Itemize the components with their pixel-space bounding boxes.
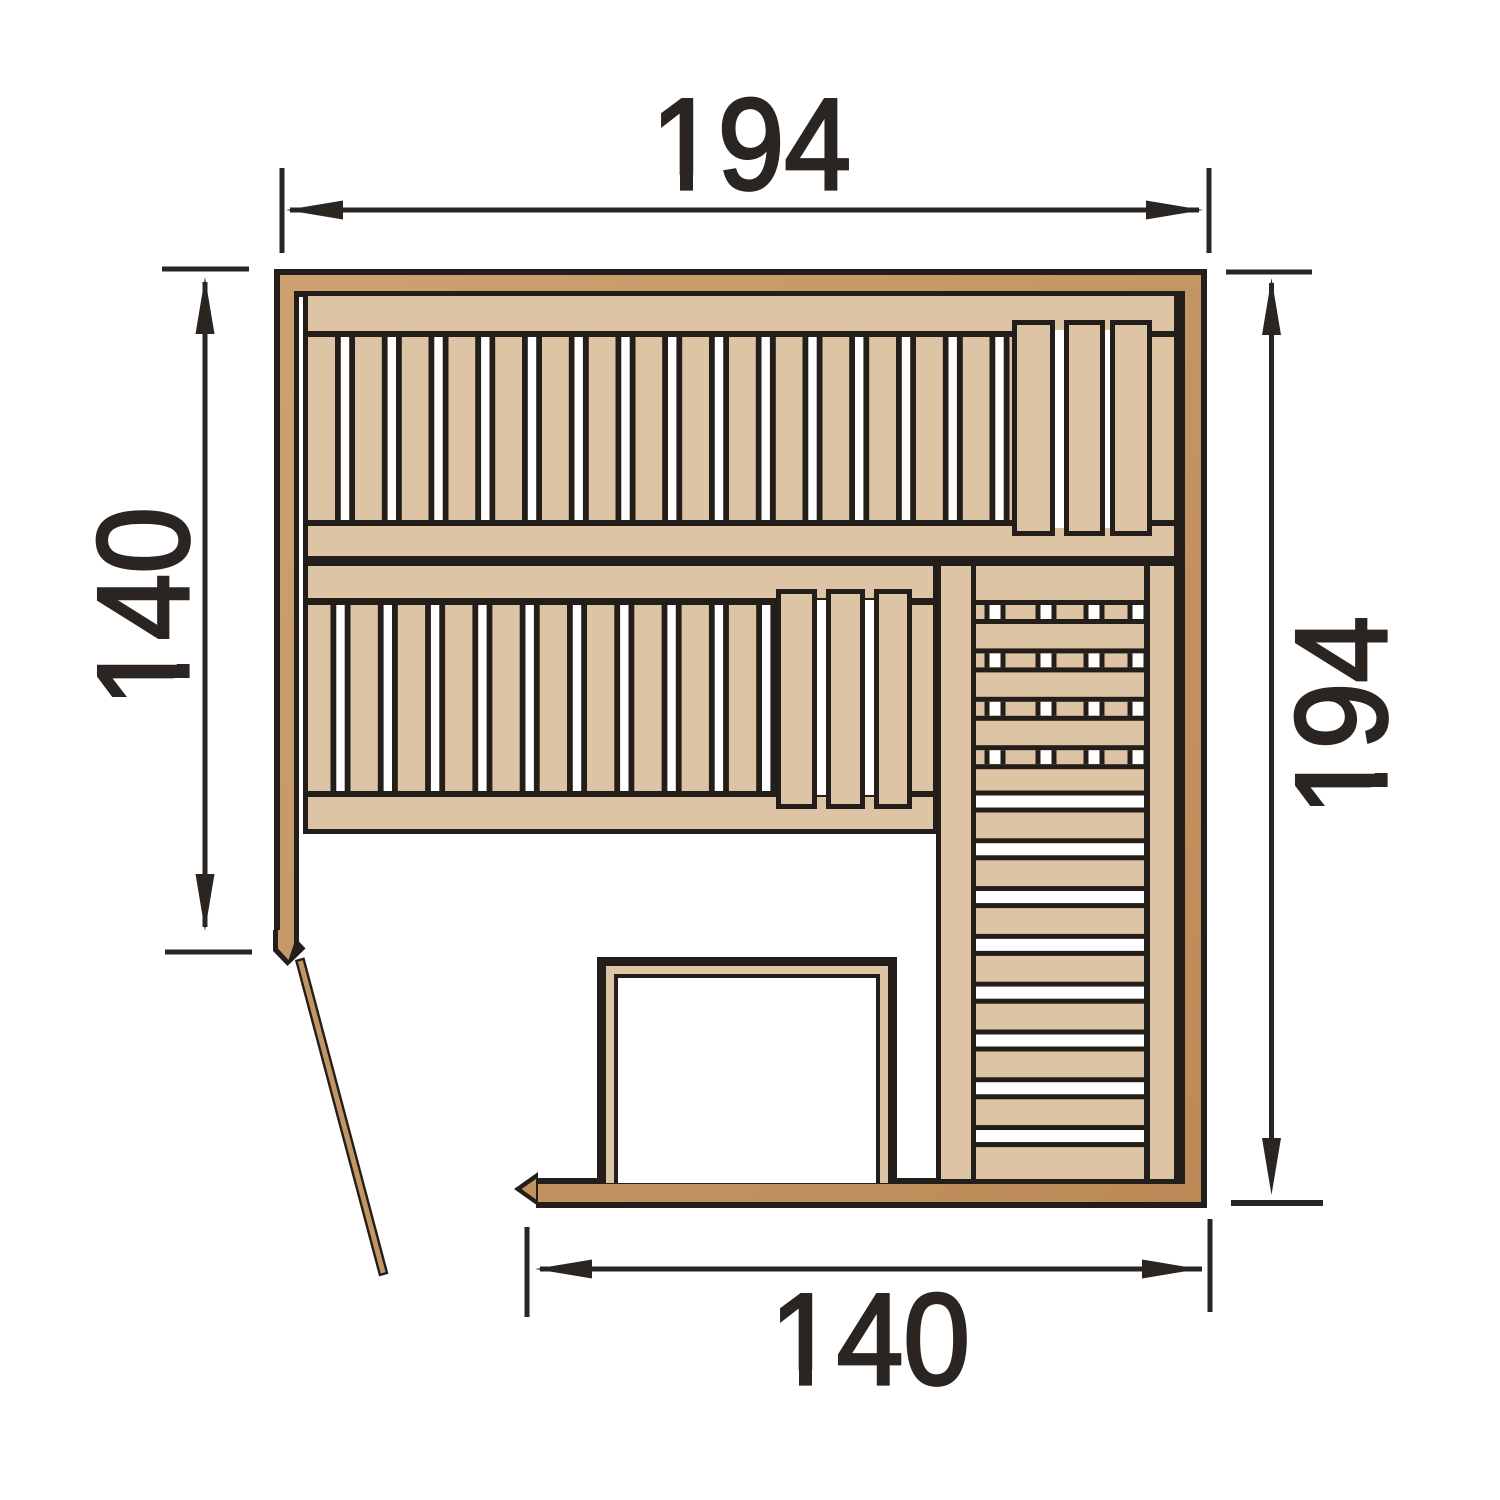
svg-text:194: 194 bbox=[651, 71, 851, 217]
svg-text:140: 140 bbox=[770, 1266, 970, 1412]
svg-text:194: 194 bbox=[1268, 616, 1414, 816]
svg-text:140: 140 bbox=[70, 507, 216, 707]
